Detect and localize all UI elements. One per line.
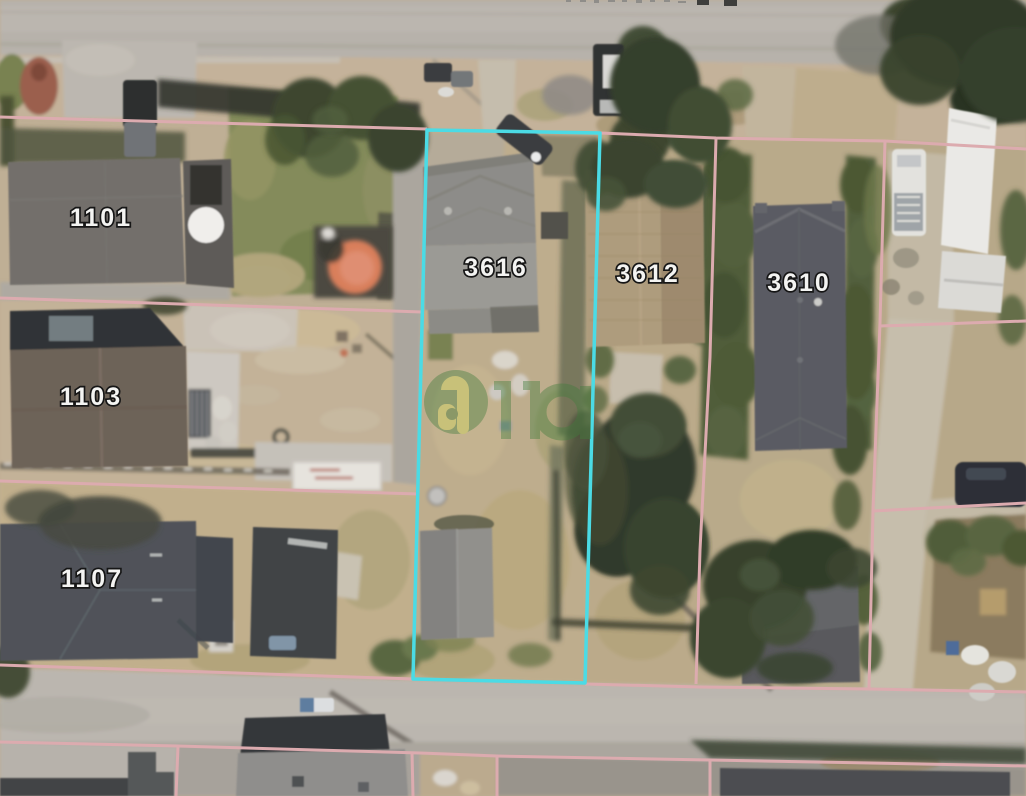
svg-text:3610: 3610 (767, 269, 831, 297)
svg-text:1103: 1103 (60, 383, 122, 411)
svg-text:1107: 1107 (61, 565, 123, 593)
svg-text:3612: 3612 (616, 260, 680, 288)
svg-text:3616: 3616 (464, 254, 528, 282)
svg-text:1101: 1101 (70, 204, 132, 232)
